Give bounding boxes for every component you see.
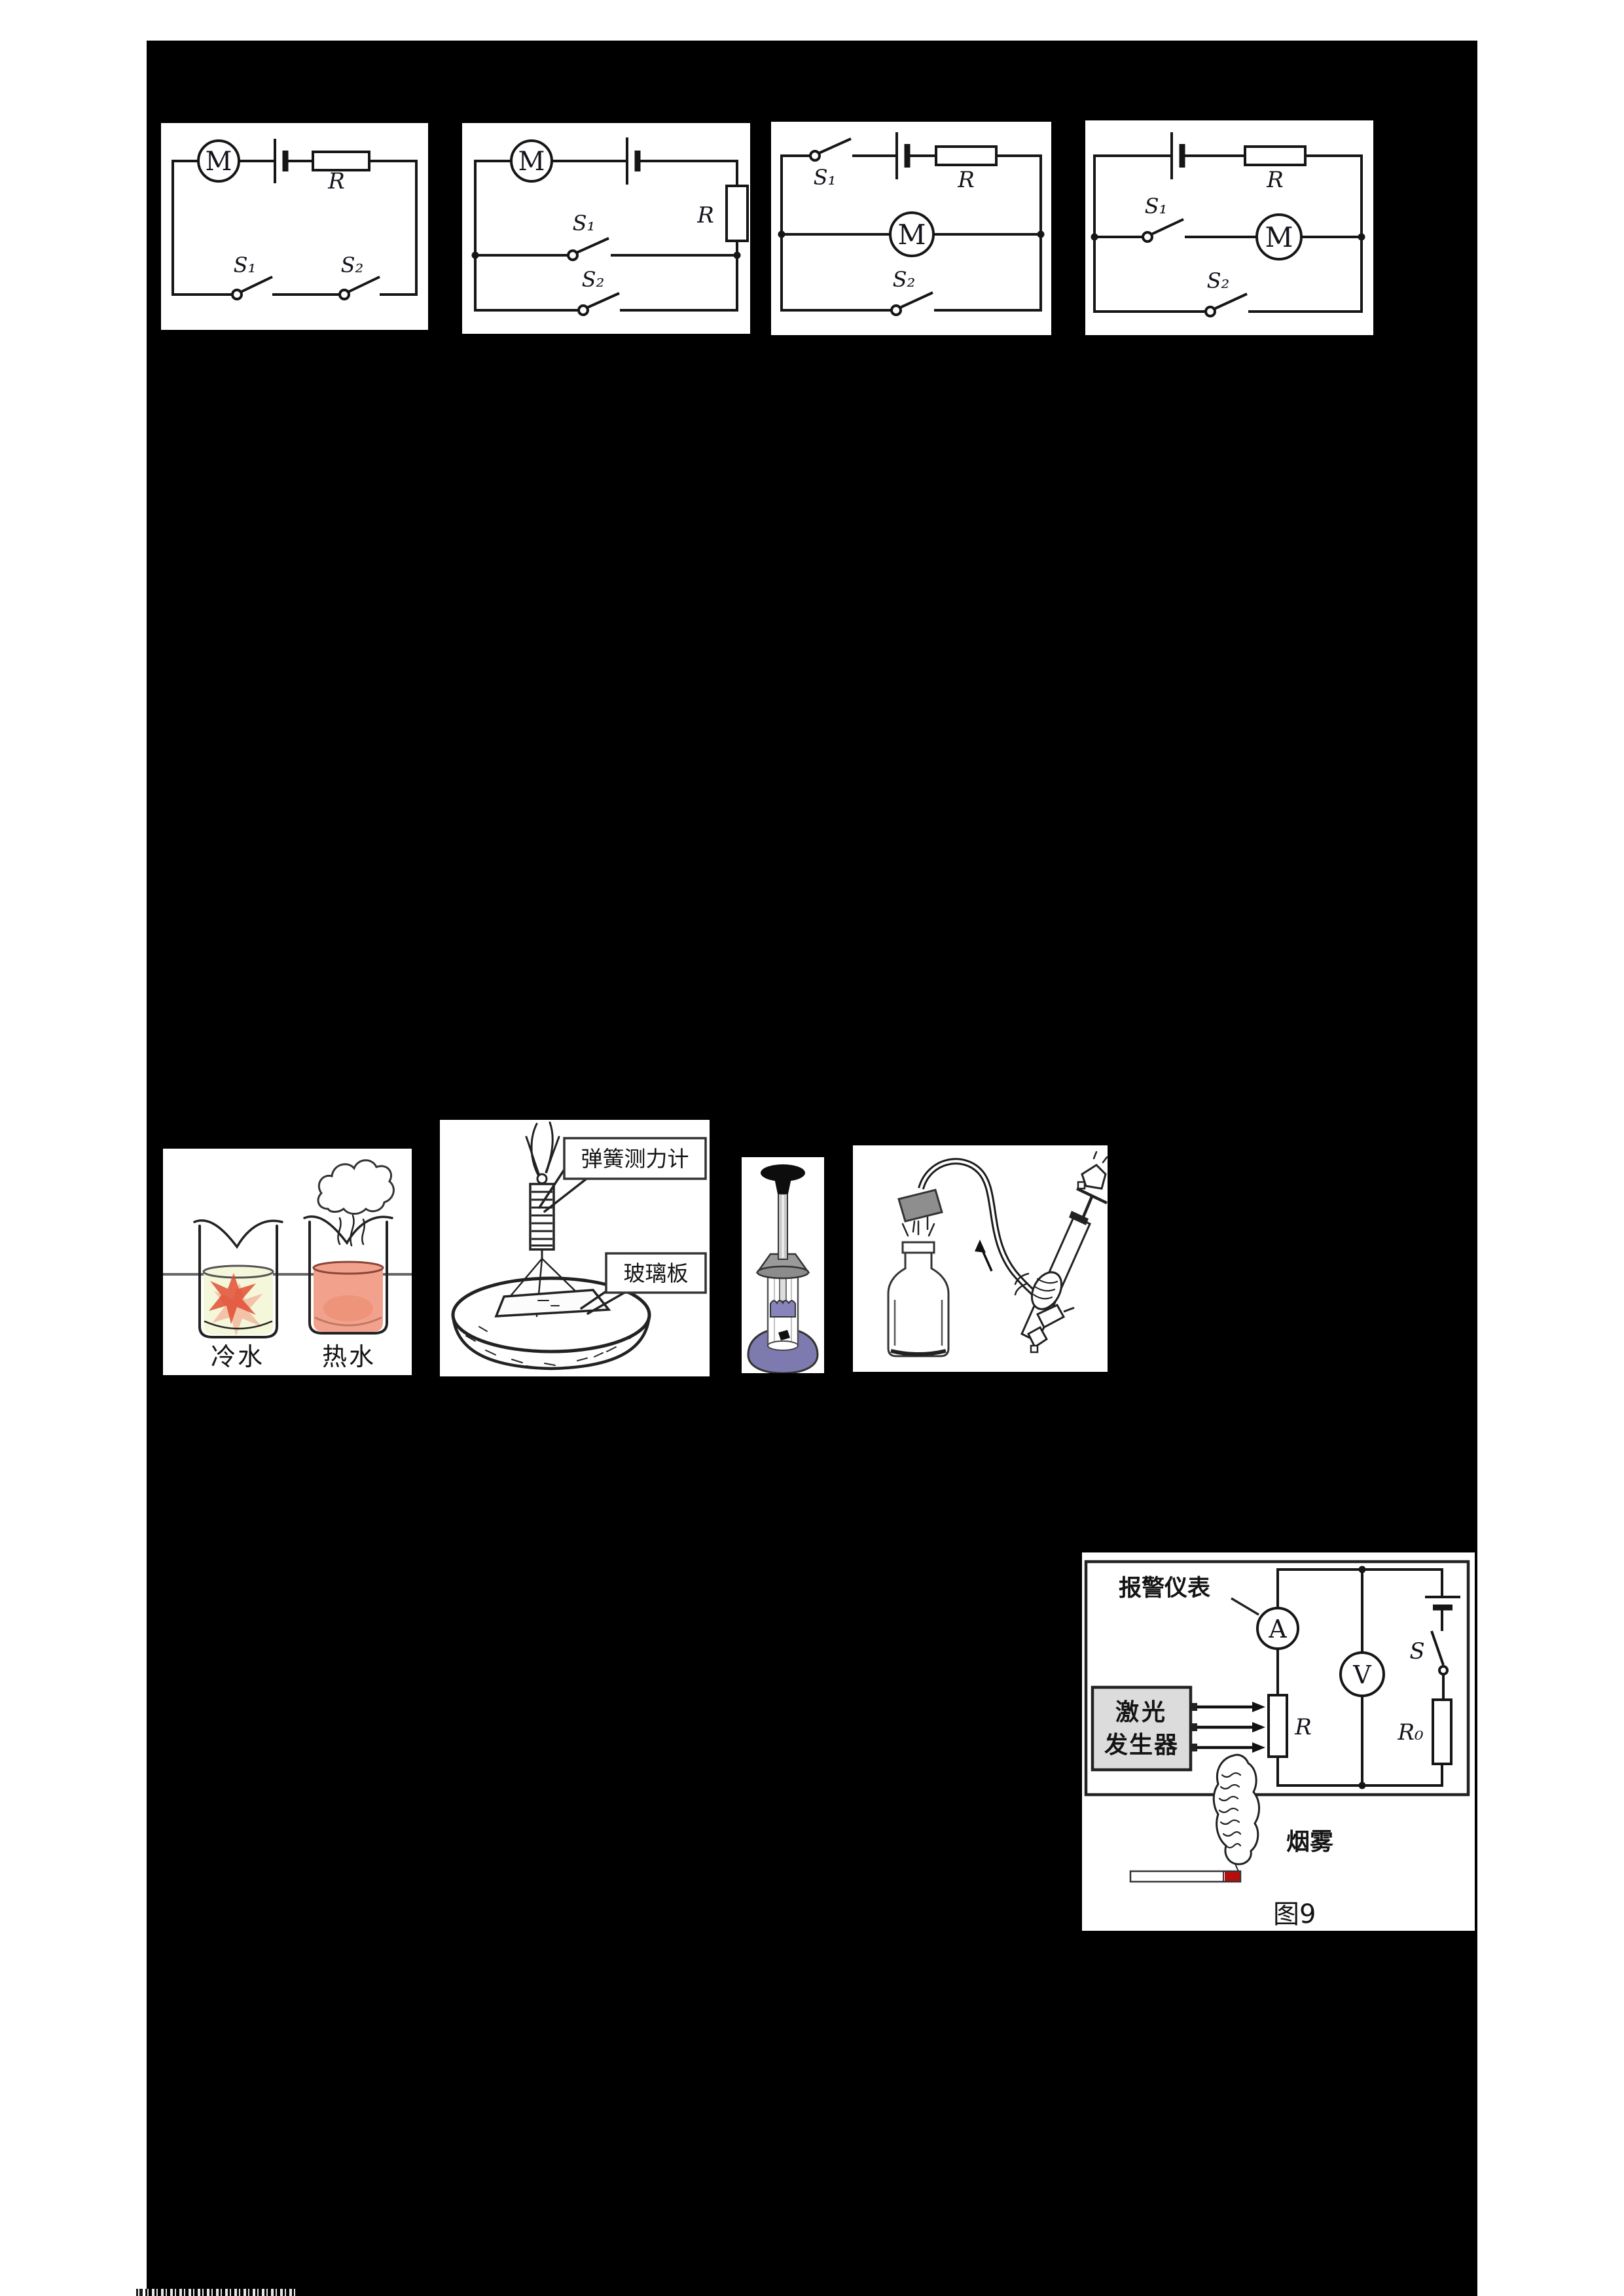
circuit-a-wires	[173, 161, 416, 295]
smoke-alarm-drawing: A V S R R₀ 报警仪表 激光 发生器	[1082, 1552, 1475, 1931]
pop-lines	[903, 1221, 934, 1236]
series-resistor-label: R₀	[1397, 1719, 1424, 1746]
steam-lines	[338, 1215, 364, 1246]
diffusion-experiment-figure: 冷水 热水	[163, 1149, 412, 1375]
switch-label: S	[1409, 1638, 1424, 1664]
photoresistor-icon	[1269, 1695, 1287, 1757]
resistor-icon	[936, 147, 996, 165]
junction-dot	[1359, 1782, 1366, 1789]
pump-bottle-drawing	[853, 1145, 1108, 1372]
piston	[770, 1300, 795, 1317]
battery-icon	[627, 137, 638, 185]
cold-water-label: 冷水	[211, 1342, 264, 1371]
scanned-exam-page: M R S₁ S₂ M	[0, 0, 1624, 2296]
switch1-icon	[1143, 219, 1183, 242]
junction-dot	[1359, 1566, 1366, 1573]
junction-dot	[778, 231, 785, 238]
tube-bottom	[768, 1341, 798, 1350]
spring-scale-callout: 弹簧测力计	[539, 1138, 706, 1211]
switch2-icon	[340, 277, 380, 299]
switch1-label: S₁	[1145, 194, 1168, 219]
glass-plate-label: 玻璃板	[624, 1261, 689, 1286]
hot-beaker-rim	[304, 1217, 392, 1243]
diffusion-drawing: 冷水 热水	[163, 1149, 412, 1375]
switch1-label: S₁	[573, 211, 596, 236]
fire-syringe-drawing	[742, 1157, 824, 1373]
series-resistor-icon	[1433, 1700, 1451, 1764]
spray-head-icon	[1082, 1165, 1106, 1189]
cold-beaker-rim	[194, 1221, 282, 1247]
resistor-label: R	[696, 202, 714, 228]
pump-icon	[1022, 1152, 1107, 1342]
switch2-icon	[579, 293, 619, 315]
circuit-figure-a: M R S₁ S₂	[161, 123, 428, 330]
junction-dot	[1358, 234, 1365, 241]
switch1-icon	[232, 277, 272, 299]
laser-label-line1: 激光	[1115, 1699, 1168, 1726]
laser-label-line2: 发生器	[1104, 1732, 1179, 1759]
motor-label: M	[897, 219, 926, 251]
hot-beaker	[304, 1160, 393, 1333]
resistor-icon	[727, 186, 748, 241]
switch2-icon	[892, 293, 933, 315]
motor-label: M	[1265, 221, 1293, 253]
junction-dot	[472, 252, 479, 259]
fire-syringe-figure	[742, 1157, 824, 1373]
junction-dot	[734, 252, 741, 259]
motor-label: M	[518, 147, 545, 177]
switch2-label: S₂	[1207, 268, 1230, 293]
smoke-label: 烟雾	[1286, 1829, 1334, 1856]
junction-dot	[1038, 231, 1045, 238]
cigarette-icon	[1130, 1871, 1240, 1882]
stopper-icon	[899, 1190, 942, 1221]
motor-label: M	[206, 147, 232, 177]
switch2-label: S₂	[893, 267, 916, 292]
smoke-cloud-icon	[1214, 1755, 1259, 1871]
circuit-c-drawing: M S₁ R S₂	[771, 122, 1051, 335]
hot-water-label: 热水	[322, 1342, 376, 1371]
resistor-label: R	[327, 168, 345, 194]
resistor-label: R	[1266, 167, 1284, 193]
battery-icon	[275, 139, 285, 183]
circuit-figure-b: M R S₁ S₂	[462, 123, 750, 334]
knob	[761, 1164, 805, 1181]
laser-generator-box: 激光 发生器	[1092, 1687, 1191, 1770]
switch1-label: S₁	[234, 253, 257, 278]
circuit-figure-c: M S₁ R S₂	[771, 122, 1051, 335]
switch1-icon	[568, 238, 609, 260]
spring-scale-label: 弹簧测力计	[581, 1146, 689, 1172]
circuit-a-drawing: M R S₁ S₂	[161, 123, 428, 330]
circuit-b-drawing: M R S₁ S₂	[462, 123, 750, 334]
switch2-label: S₂	[582, 267, 605, 292]
ammeter-label: A	[1268, 1615, 1287, 1643]
circuit-d-drawing: M S₁ R S₂	[1085, 120, 1373, 335]
bottle-icon	[888, 1242, 948, 1356]
voltmeter-label: V	[1352, 1660, 1371, 1689]
battery-icon	[897, 132, 907, 179]
switch2-icon	[1206, 294, 1247, 316]
spring-scale-icon	[530, 1184, 554, 1259]
cold-beaker	[194, 1221, 282, 1337]
surface-tension-experiment-figure: 弹簧测力计 玻璃板	[440, 1120, 710, 1376]
hand-icon	[526, 1122, 559, 1183]
switch1-label: S₁	[814, 165, 837, 190]
switch1-icon	[810, 139, 851, 160]
resistor-label: R	[957, 167, 975, 193]
smoke-alarm-figure: A V S R R₀ 报警仪表 激光 发生器	[1082, 1552, 1475, 1931]
alarm-meter-label: 报警仪表	[1119, 1575, 1210, 1602]
figure-caption: 图9	[1273, 1899, 1316, 1929]
airflow-arrow-icon	[975, 1240, 992, 1271]
junction-dot	[1091, 234, 1098, 241]
steam-cloud-icon	[318, 1160, 393, 1214]
footer-clipped-text-fragment	[134, 2289, 296, 2296]
spring-scale-drawing: 弹簧测力计 玻璃板	[440, 1120, 710, 1376]
battery-icon	[1172, 132, 1182, 179]
resistor-icon	[313, 152, 369, 170]
resistor-icon	[1245, 147, 1305, 165]
pump-bottle-experiment-figure	[853, 1145, 1108, 1372]
photoresistor-label: R	[1294, 1714, 1312, 1740]
circuit-b-wires	[475, 161, 737, 310]
switch2-label: S₂	[341, 253, 364, 278]
circuit-figure-d: M S₁ R S₂	[1085, 120, 1373, 335]
